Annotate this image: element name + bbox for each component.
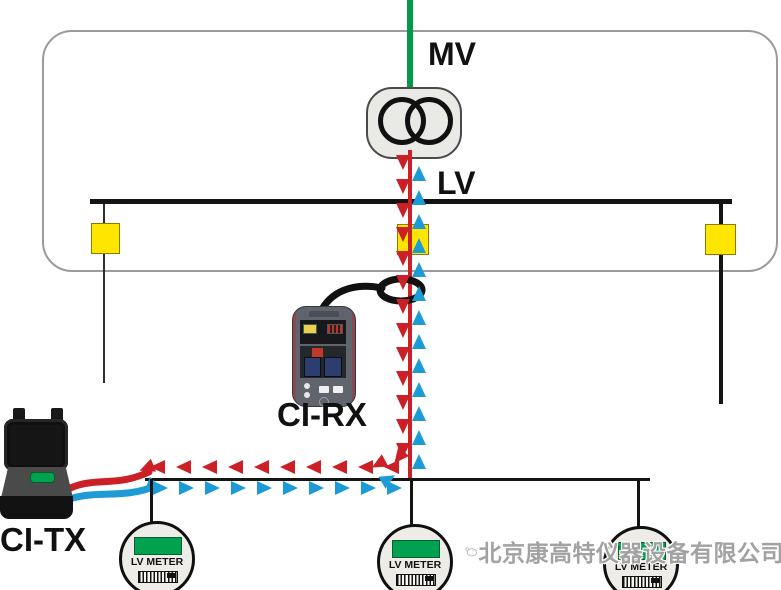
- ci-rx-label: CI-RX: [277, 396, 367, 434]
- blue-signal-arrow: [412, 238, 426, 253]
- red-signal-arrow: [202, 460, 217, 474]
- red-signal-arrow: [396, 323, 410, 338]
- ci-tx-label: CI-TX: [0, 521, 86, 559]
- blue-signal-arrow: [412, 334, 426, 349]
- red-signal-arrow: [332, 460, 347, 474]
- red-signal-arrow: [396, 275, 410, 290]
- red-signal-arrow: [254, 460, 269, 474]
- watermark-text: 北京康高特仪器设备有限公司: [479, 534, 781, 568]
- blue-signal-arrow: [412, 214, 426, 229]
- blue-signal-arrow: [205, 481, 220, 495]
- blue-signal-arrow: [412, 262, 426, 277]
- ci-rx-button: [319, 386, 329, 393]
- meter-drop-line: [637, 480, 640, 528]
- blue-signal-arrow: [412, 406, 426, 421]
- ci-rx-port-panel: [300, 346, 346, 378]
- ci-rx-port-icon: [304, 357, 321, 377]
- red-signal-arrow: [396, 347, 410, 362]
- meter-drop-line: [410, 480, 413, 526]
- blue-signal-arrow: [412, 190, 426, 205]
- red-signal-arrow: [396, 251, 410, 266]
- ci-tx-case-base: [0, 496, 73, 519]
- ci-tx-case-lid: [4, 419, 68, 471]
- meter-display: [134, 537, 182, 555]
- ci-tx-green-button: [30, 472, 55, 483]
- blue-signal-arrow: [231, 481, 246, 495]
- blue-signal-arrow: [283, 481, 298, 495]
- red-signal-arrow: [280, 460, 295, 474]
- ci-rx-logo: [309, 311, 339, 317]
- lv-meter-1: LV METER: [119, 521, 195, 590]
- blue-signal-arrow: [412, 430, 426, 445]
- blue-signal-arrow: [412, 358, 426, 373]
- diagram-canvas: MV LV CI-RX: [0, 0, 781, 590]
- watermark: 北京康高特仪器设备有限公司: [464, 531, 781, 571]
- blue-signal-arrow: [412, 166, 426, 181]
- ci-rx-button: [333, 386, 343, 393]
- blue-signal-arrow: [179, 481, 194, 495]
- blue-signal-arrow: [309, 481, 324, 495]
- ci-rx-device: [292, 306, 356, 407]
- meter-label: LV METER: [380, 559, 450, 571]
- meter-barcode: [396, 574, 436, 586]
- watermark-logo-icon: [464, 531, 479, 571]
- meter-label: LV METER: [122, 556, 192, 568]
- meter-drop-line: [150, 479, 153, 523]
- red-signal-arrow: [396, 419, 410, 434]
- lv-meter-2: LV METER: [377, 524, 453, 590]
- blue-signal-arrow: [335, 481, 350, 495]
- meter-display: [392, 540, 440, 558]
- red-signal-arrow: [228, 460, 243, 474]
- red-signal-arrow: [176, 460, 191, 474]
- red-signal-arrow: [396, 299, 410, 314]
- signal-arrows-layer: [0, 0, 781, 590]
- blue-signal-arrow: [257, 481, 272, 495]
- ci-rx-port-icon: [324, 357, 342, 377]
- blue-signal-arrow: [412, 382, 426, 397]
- ci-rx-indicator-yellow: [303, 324, 317, 334]
- red-signal-arrow: [396, 155, 410, 170]
- ci-rx-red-connector: [312, 348, 323, 357]
- blue-signal-arrow: [412, 310, 426, 325]
- red-signal-arrow: [396, 395, 410, 410]
- meter-barcode: [622, 576, 662, 588]
- red-signal-arrow: [396, 203, 410, 218]
- blue-signal-arrow: [361, 481, 376, 495]
- red-signal-arrow: [306, 460, 321, 474]
- ci-rx-screen: [300, 320, 346, 344]
- blue-signal-arrow: [412, 454, 426, 469]
- ci-rx-round-button: [304, 383, 310, 389]
- meter-barcode: [138, 571, 178, 583]
- red-signal-arrow: [396, 227, 410, 242]
- blue-signal-arrow: [412, 286, 426, 301]
- red-signal-arrow: [396, 179, 410, 194]
- ci-rx-indicator-red: [327, 324, 343, 334]
- red-signal-arrow: [396, 371, 410, 386]
